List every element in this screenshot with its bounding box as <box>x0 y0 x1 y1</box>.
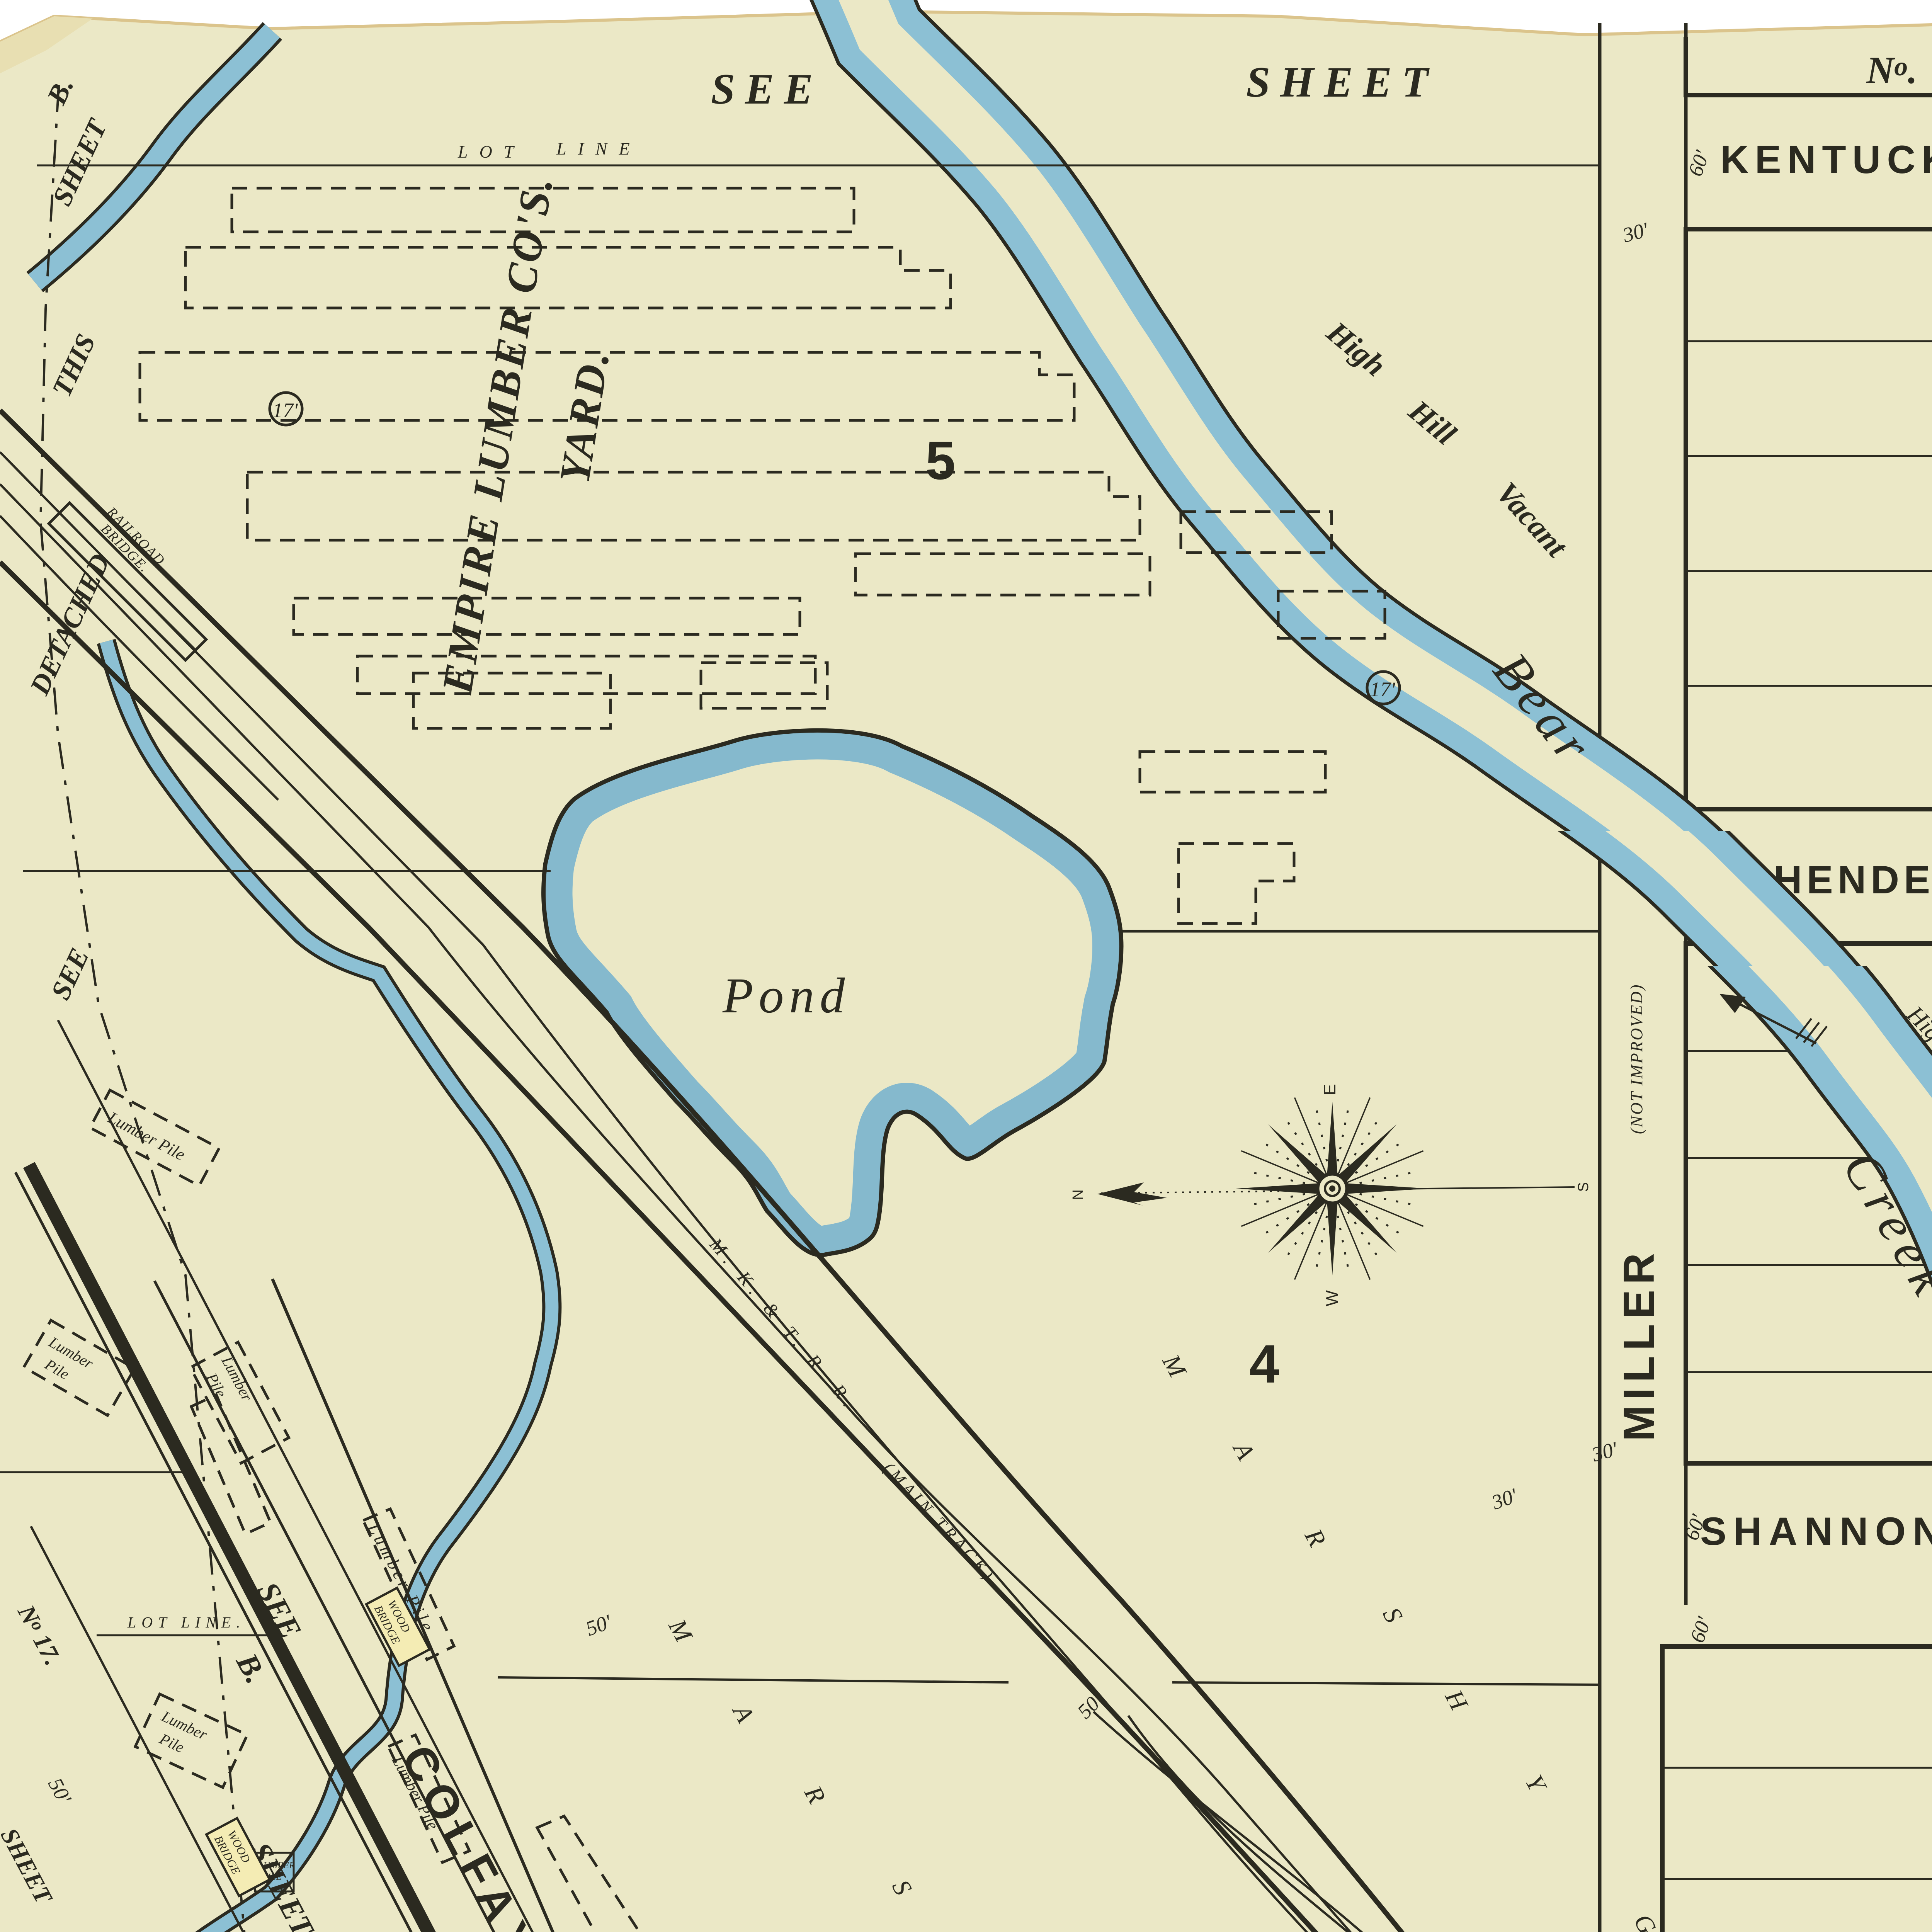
svg-text:5: 5 <box>925 430 956 491</box>
svg-text:MILLER: MILLER <box>1615 1248 1663 1441</box>
svg-text:KENTUCKY: KENTUCKY <box>1720 138 1932 182</box>
svg-text:LOT: LOT <box>457 142 525 162</box>
svg-text:W: W <box>1323 1290 1342 1306</box>
svg-text:No.: No. <box>1866 49 1917 92</box>
svg-text:17': 17' <box>272 399 298 422</box>
svg-text:SEE: SEE <box>711 65 823 113</box>
svg-text:HENDERSON: HENDERSON <box>1774 858 1932 902</box>
svg-text:LOT LINE.: LOT LINE. <box>127 1614 245 1631</box>
svg-text:17': 17' <box>1370 678 1396 701</box>
svg-text:(NOT IMPROVED): (NOT IMPROVED) <box>1627 984 1646 1134</box>
svg-text:SHEET: SHEET <box>1246 58 1438 106</box>
svg-text:N: N <box>1070 1189 1086 1200</box>
svg-text:S: S <box>1575 1182 1592 1192</box>
svg-text:Pond: Pond <box>722 968 850 1024</box>
svg-text:E: E <box>1320 1084 1339 1095</box>
svg-text:LINE: LINE <box>556 139 641 158</box>
svg-text:4: 4 <box>1249 1333 1279 1394</box>
svg-text:SHANNON: SHANNON <box>1700 1509 1932 1553</box>
